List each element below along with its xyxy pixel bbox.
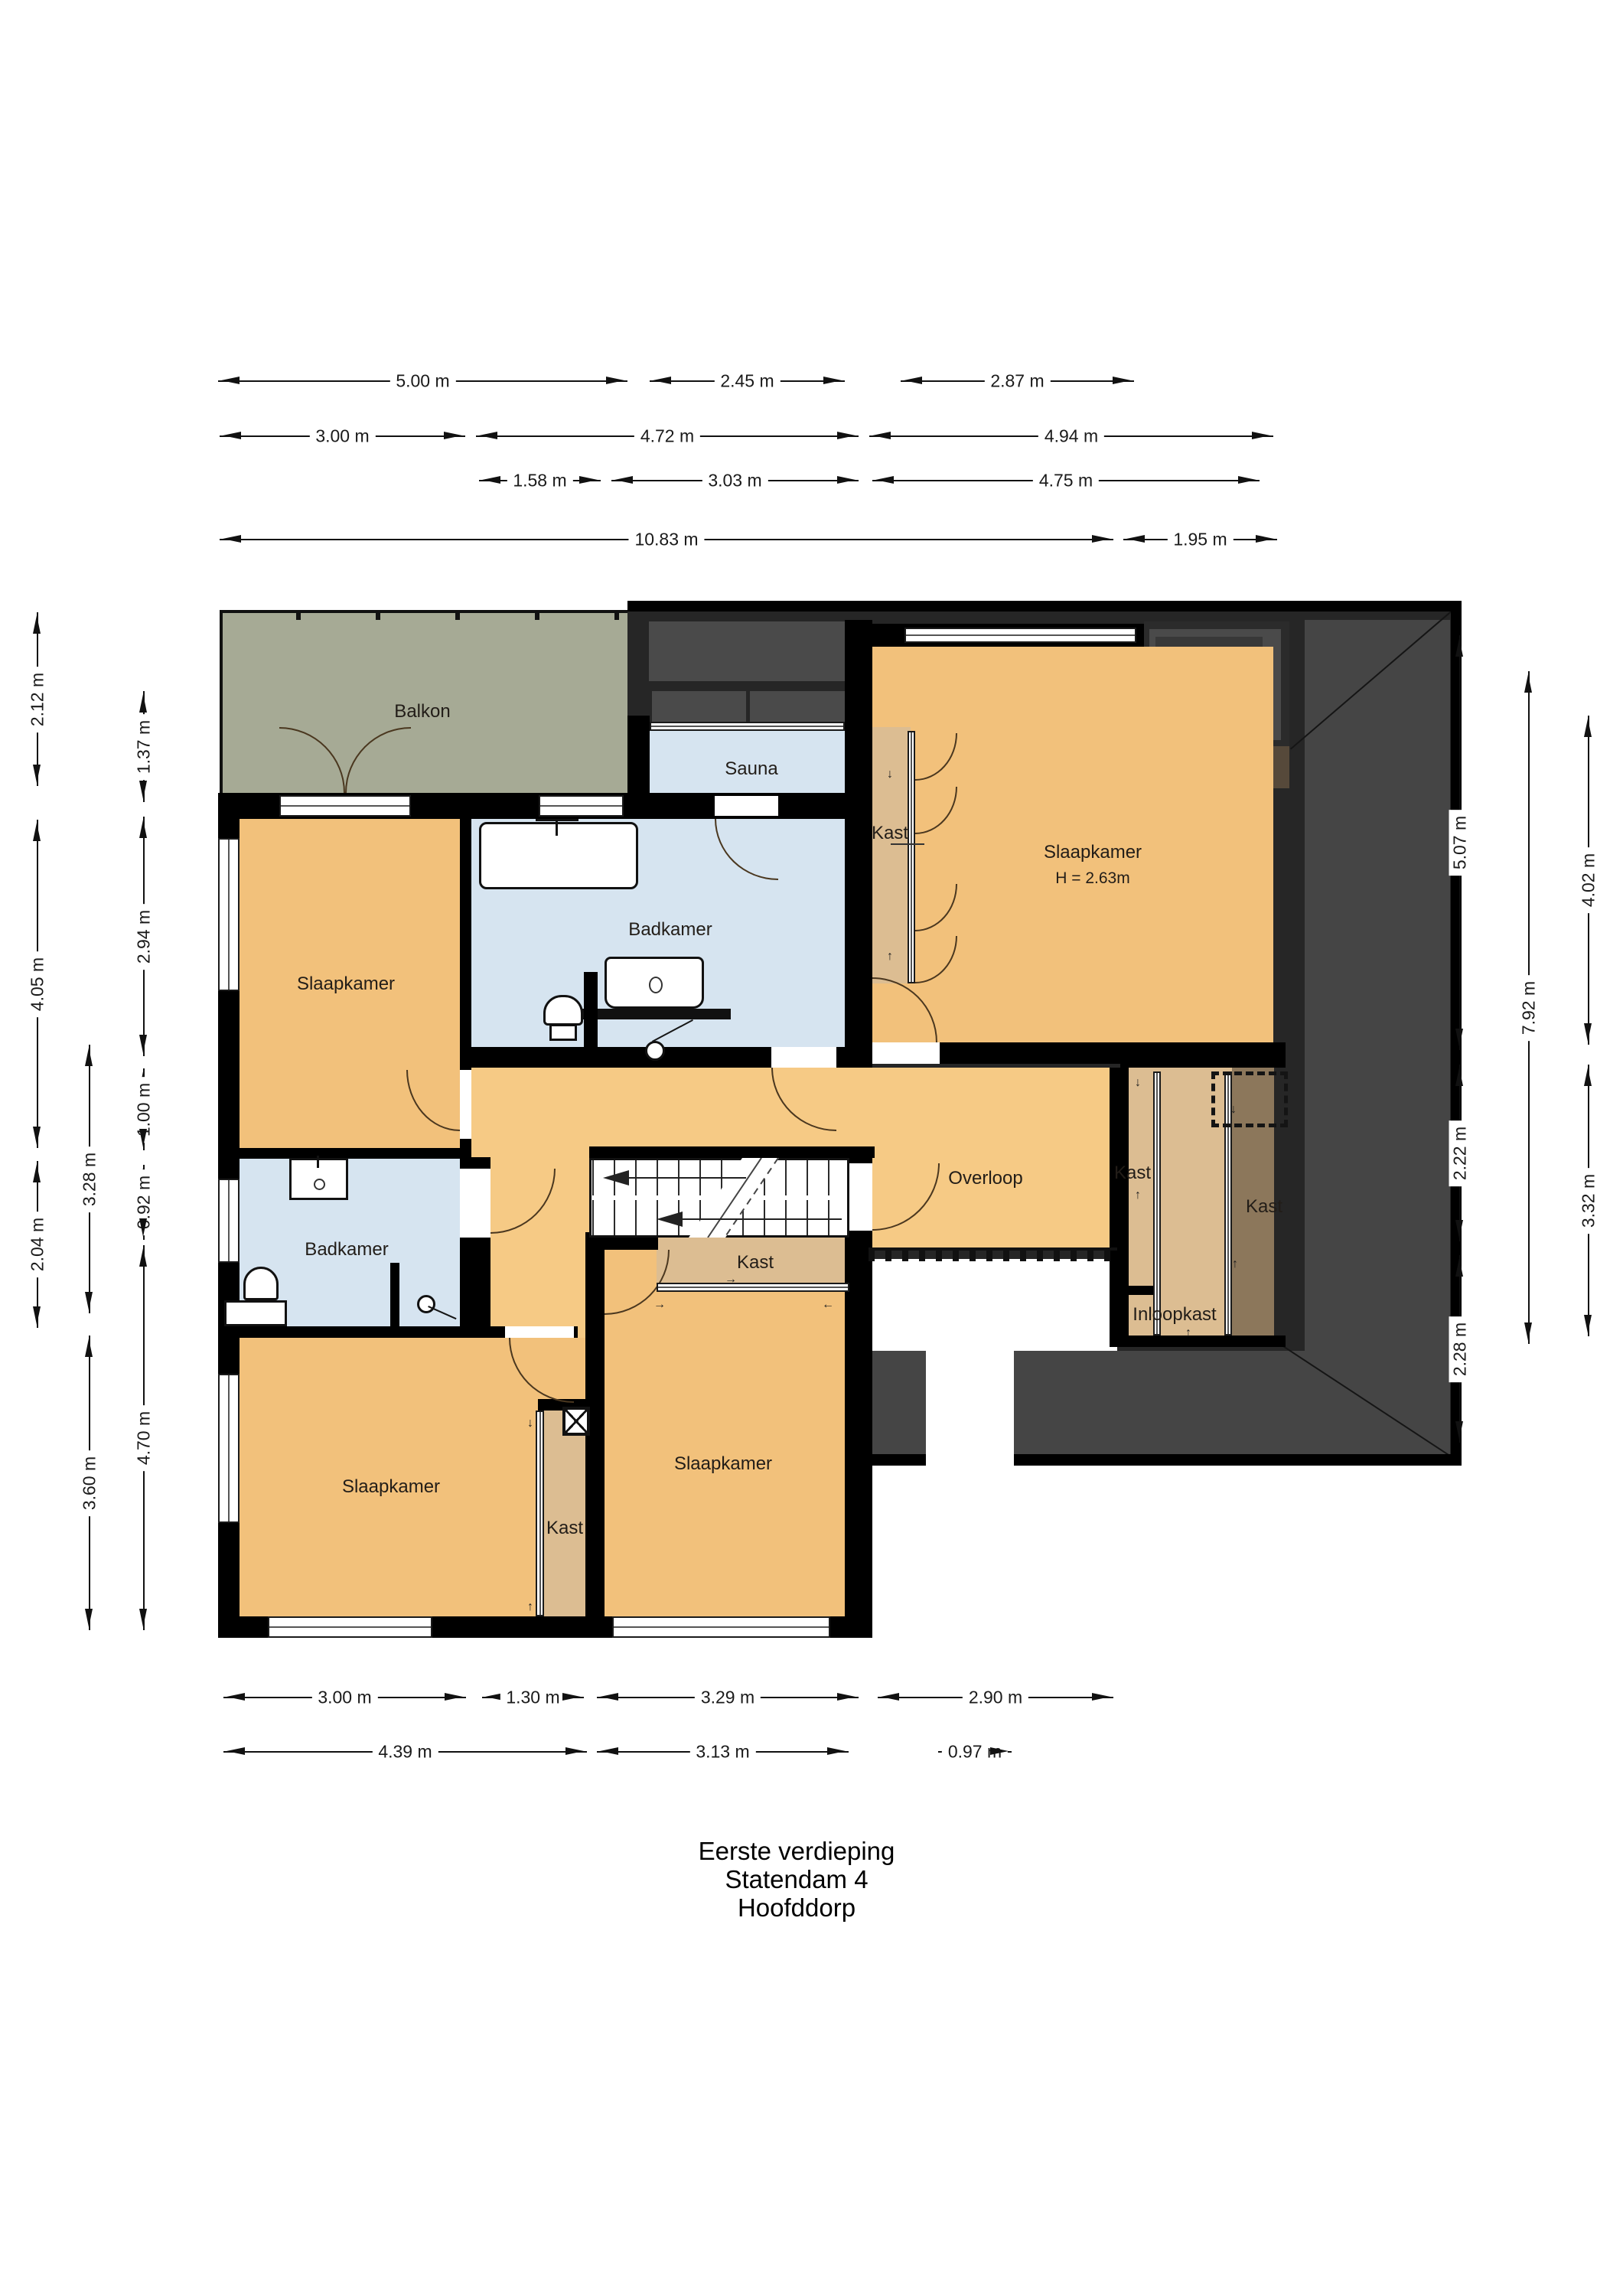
room-label-inloopkast: Inloopkast [1133, 1304, 1216, 1326]
stair-break-and-arrows [589, 1158, 849, 1238]
roof-panel [1305, 620, 1450, 1454]
toilet-partition [584, 972, 598, 1047]
dimension-label: 4.70 m [133, 1404, 155, 1470]
room-slaapkamer-middenonder [605, 1250, 847, 1616]
roof-panel [649, 621, 851, 681]
dimension-label: 2.45 m [714, 370, 780, 393]
wall-hal-slaapkamer-mo [585, 1250, 605, 1638]
dimension-label: 2.87 m [984, 370, 1050, 393]
direction-marker: → [653, 1298, 666, 1312]
direction-marker: → [725, 1273, 737, 1287]
dimension-label: 2.90 m [963, 1687, 1028, 1709]
dimension-vertical: 1.00 m [143, 1068, 145, 1150]
closet-top-strip [872, 727, 911, 983]
wall-closet-boven [1120, 1042, 1286, 1068]
window-slaapkamer-lo [218, 1374, 240, 1523]
dimension-horizontal: 3.00 m [220, 435, 465, 437]
door-opening-slaapkamer-lb [460, 1070, 471, 1139]
dimension-label: 2.12 m [27, 666, 49, 732]
sauna-window [650, 722, 845, 731]
bathtub-faucet-icon [556, 819, 558, 836]
plan-title-line2: Statendam 4 [605, 1865, 988, 1893]
dimension-vertical: 2.28 m [1459, 1255, 1461, 1443]
window-balkon [539, 795, 624, 817]
wall-spine-onder [845, 1238, 872, 1638]
roof-window [652, 691, 746, 726]
washbasin-drain [314, 1179, 325, 1190]
room-label-sauna: Sauna [725, 758, 777, 780]
window-slaapkamer-lb [218, 838, 240, 991]
room-label-badkamer-boven: Badkamer [628, 919, 712, 941]
balcony-railing [220, 610, 223, 793]
window-badkamer-beneden [218, 1179, 240, 1263]
room-label-balkon: Balkon [394, 701, 450, 722]
wall-slaapkamer-badkamer-onder [218, 1148, 471, 1159]
shaft-icon [562, 1407, 590, 1436]
room-label-kast-rechts-2: Kast [1246, 1196, 1282, 1218]
dimension-horizontal: 2.45 m [650, 380, 845, 382]
wardrobe-track [908, 731, 915, 983]
dimension-horizontal: 2.87 m [901, 380, 1134, 382]
dimension-horizontal: 3.03 m [611, 480, 859, 481]
dimension-vertical: 2.12 m [37, 612, 38, 786]
dimension-vertical: 1.37 m [143, 691, 145, 802]
dimension-horizontal: 4.75 m [872, 480, 1260, 481]
dimension-label: 1.58 m [507, 470, 572, 492]
balcony-railing [221, 610, 627, 620]
dimension-label: 3.29 m [695, 1687, 761, 1709]
dimension-label: 3.00 m [309, 426, 375, 448]
dimension-label: 3.28 m [79, 1146, 101, 1212]
toilet-tank [549, 1024, 577, 1041]
plan-title-line3: Hoofddorp [605, 1893, 988, 1922]
dimension-label: 2.94 m [133, 903, 155, 969]
dimension-horizontal: 3.00 m [223, 1697, 466, 1698]
toilet-tank [224, 1300, 287, 1326]
door-opening-slaapkamer-rb [872, 1042, 940, 1064]
dimension-label: 5.00 m [389, 370, 455, 393]
wardrobe-track [657, 1283, 849, 1292]
direction-marker: ↑ [527, 1600, 533, 1614]
dimension-horizontal: 1.58 m [479, 480, 601, 481]
dimension-vertical: 4.70 m [143, 1245, 145, 1630]
direction-marker: ← [822, 1298, 834, 1312]
dimension-label: 4.02 m [1578, 847, 1600, 913]
direction-marker: ↓ [887, 768, 893, 781]
dimension-label: 4.05 m [27, 951, 49, 1016]
dimension-vertical: 7.92 m [1528, 671, 1530, 1344]
bathtub [479, 822, 638, 889]
dimension-horizontal: 3.13 m [597, 1751, 849, 1753]
dimension-label: 3.32 m [1578, 1167, 1600, 1233]
shower-head-icon [645, 1041, 665, 1061]
direction-marker: ↓ [1135, 1076, 1141, 1090]
direction-marker: ↓ [1230, 1103, 1237, 1117]
direction-marker: ↓ [527, 1417, 533, 1430]
dimension-horizontal: 10.83 m [220, 539, 1113, 540]
dimension-label: 1.37 m [133, 713, 155, 779]
floorplan-canvas: Eerste verdieping Statendam 4 Hoofddorp … [0, 0, 1623, 2296]
wardrobe-track [1153, 1071, 1161, 1336]
skylight-dashed-outline [1211, 1071, 1288, 1127]
roof-frame [1014, 1454, 1462, 1466]
balcony-door-threshold [279, 795, 411, 817]
room-sublabel-slaapkamer-rechtsboven: H = 2.63m [1044, 869, 1142, 888]
direction-marker: ↑ [1135, 1189, 1141, 1202]
dimension-horizontal: 4.94 m [869, 435, 1273, 437]
wall-inloopkast-onder [1110, 1336, 1286, 1347]
room-label-badkamer-beneden: Badkamer [305, 1239, 388, 1261]
dimension-horizontal: 2.90 m [878, 1697, 1113, 1698]
dimension-label: 0.97 m [942, 1741, 1008, 1763]
wall-trap-boven [589, 1146, 875, 1158]
wardrobe-track [536, 1411, 544, 1616]
dimension-label: 4.72 m [634, 426, 700, 448]
wall-closet-links [1110, 1068, 1129, 1347]
dimension-vertical: 4.02 m [1588, 716, 1589, 1045]
direction-marker: ↑ [1185, 1326, 1191, 1340]
dimension-label: 7.92 m [1518, 974, 1540, 1040]
dimension-vertical: 2.22 m [1459, 1065, 1461, 1241]
dimension-label: 3.13 m [689, 1741, 755, 1763]
washbasin-drain [649, 977, 663, 993]
dimension-label: 3.60 m [79, 1450, 101, 1515]
shower-head-icon [417, 1295, 435, 1313]
room-label-slaapkamer-rechtsboven: SlaapkamerH = 2.63m [1044, 842, 1142, 888]
dimension-horizontal: 1.95 m [1123, 539, 1277, 540]
wall-sauna-links [627, 716, 650, 819]
dimension-vertical: 4.05 m [37, 820, 38, 1148]
dimension-label: 5.07 m [1449, 810, 1471, 876]
dimension-label: 0.92 m [133, 1169, 155, 1235]
dimension-label: 2.28 m [1449, 1316, 1471, 1381]
shower-partition [390, 1263, 399, 1329]
dimension-horizontal: 4.39 m [223, 1751, 587, 1753]
door-opening-trap [849, 1163, 872, 1231]
balustrade [869, 1247, 1117, 1261]
door-opening-badkamer-beneden [460, 1169, 490, 1238]
room-label-slaapkamer-middenonder: Slaapkamer [674, 1453, 772, 1475]
dimension-label: 3.03 m [702, 470, 768, 492]
dimension-vertical: 2.04 m [37, 1161, 38, 1328]
dimension-horizontal: 5.00 m [218, 380, 627, 382]
dimension-horizontal: 0.97 m [938, 1751, 1012, 1753]
roof-window [750, 691, 851, 726]
dimension-horizontal: 1.30 m [482, 1697, 584, 1698]
direction-marker: ↑ [1232, 1257, 1238, 1271]
stairwell-void [926, 1351, 1014, 1466]
toilet [243, 1267, 279, 1300]
roof-frame [627, 601, 1462, 612]
dimension-label: 3.00 m [311, 1687, 377, 1709]
dimension-label: 4.94 m [1038, 426, 1104, 448]
dimension-label: 10.83 m [628, 529, 704, 551]
room-label-kast-top: Kast [872, 823, 908, 844]
dimension-vertical: 3.32 m [1588, 1065, 1589, 1336]
room-label-kast-rechts-1: Kast [1114, 1163, 1151, 1184]
dimension-label: 1.30 m [500, 1687, 565, 1709]
dimension-label: 4.39 m [372, 1741, 438, 1763]
plan-title-line1: Eerste verdieping [605, 1837, 988, 1865]
stairwell-void [869, 1259, 1117, 1351]
dimension-horizontal: 3.29 m [597, 1697, 859, 1698]
direction-marker: ↑ [887, 950, 893, 964]
dimension-vertical: 3.60 m [89, 1336, 90, 1630]
dimension-vertical: 2.94 m [143, 817, 145, 1056]
door-opening-slaapkamer-lo [505, 1326, 574, 1338]
dimension-label: 2.22 m [1449, 1120, 1471, 1186]
faucet-icon [317, 1156, 319, 1168]
window-slaapkamer-lo-zuid [268, 1616, 432, 1638]
roof-frame [872, 1454, 926, 1466]
dimension-horizontal: 4.72 m [476, 435, 859, 437]
window-slaapkamer-mo-zuid [612, 1616, 830, 1638]
closet-onder-strip [538, 1411, 585, 1616]
dimension-vertical: 5.07 m [1459, 635, 1461, 1050]
dimension-label: 1.95 m [1167, 529, 1233, 551]
dimension-label: 1.00 m [133, 1076, 155, 1142]
dimension-label: 4.75 m [1033, 470, 1099, 492]
room-label-overloop: Overloop [948, 1168, 1022, 1189]
room-label-slaapkamer-linksboven: Slaapkamer [297, 974, 395, 995]
window-slaapkamer-rb [904, 628, 1136, 643]
wall-spine-boven [845, 620, 872, 1068]
door-opening-badkamer-boven [771, 1047, 836, 1068]
plan-title: Eerste verdieping Statendam 4 Hoofddorp [605, 1837, 988, 1922]
room-label-kast-trap: Kast [737, 1252, 774, 1274]
dimension-label: 2.04 m [27, 1212, 49, 1277]
toilet [543, 995, 583, 1026]
room-label-kast-onder: Kast [546, 1518, 583, 1539]
room-label-slaapkamer-linksonder: Slaapkamer [342, 1476, 440, 1498]
dimension-vertical: 3.28 m [89, 1045, 90, 1313]
door-opening-sauna [715, 796, 778, 816]
dimension-vertical: 0.92 m [143, 1165, 145, 1240]
